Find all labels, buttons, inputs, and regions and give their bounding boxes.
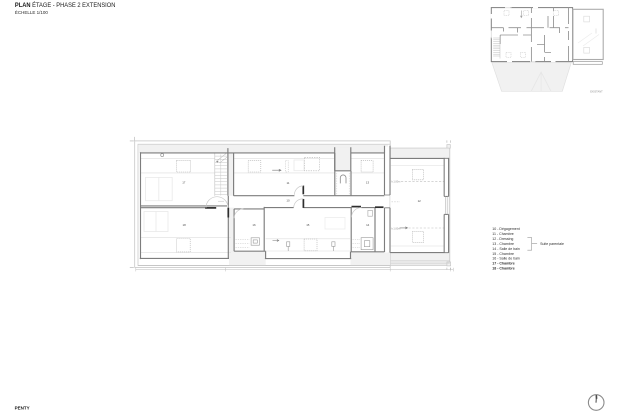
svg-text:10 - Dégagement: 10 - Dégagement [492, 227, 519, 231]
svg-text:18 - Chambre: 18 - Chambre [492, 267, 514, 271]
svg-text:Suite parentale: Suite parentale [540, 242, 564, 246]
svg-text:12: 12 [418, 199, 422, 203]
svg-text:15 - Chambre: 15 - Chambre [492, 252, 514, 256]
svg-text:15: 15 [306, 223, 310, 227]
svg-text:18: 18 [182, 223, 186, 227]
svg-text:PLAN ÉTAGE - PHASE 2 EXTENSION: PLAN ÉTAGE - PHASE 2 EXTENSION [15, 0, 116, 9]
svg-text:14: 14 [366, 223, 370, 227]
svg-text:12 - Dressing: 12 - Dressing [492, 237, 513, 241]
svg-text:ÉCHELLE 1/100: ÉCHELLE 1/100 [15, 9, 49, 15]
svg-text:13: 13 [366, 180, 370, 184]
svg-text:14 - Salle de bain: 14 - Salle de bain [492, 247, 520, 251]
svg-text:11: 11 [286, 181, 289, 185]
svg-text:10: 10 [286, 199, 290, 203]
svg-text:EXISTANT: EXISTANT [590, 89, 603, 93]
svg-text:17: 17 [182, 180, 186, 184]
svg-text:17 - Chambre: 17 - Chambre [492, 262, 514, 266]
svg-text:13 - Chambre: 13 - Chambre [492, 242, 514, 246]
svg-text:h:1.80m: h:1.80m [391, 181, 400, 184]
svg-text:11 - Chambre: 11 - Chambre [492, 232, 513, 236]
svg-text:h:1.80m: h:1.80m [391, 227, 400, 230]
svg-text:16 - Salle de bain: 16 - Salle de bain [492, 257, 520, 261]
svg-text:PENTY: PENTY [15, 405, 30, 410]
svg-text:16: 16 [252, 223, 256, 227]
